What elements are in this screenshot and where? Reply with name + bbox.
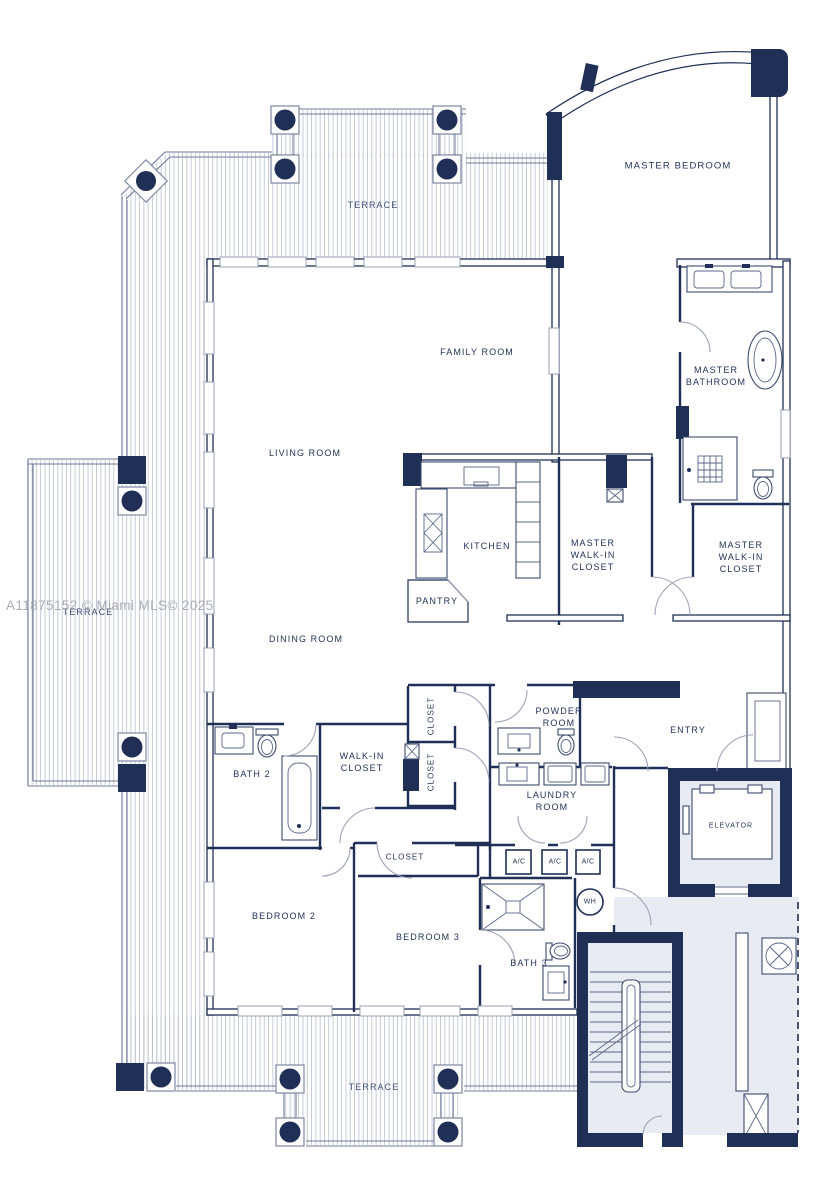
room-label-pantry: PANTRY — [416, 595, 458, 607]
label-ac-1: A/C — [513, 857, 526, 866]
room-label-master-bedroom: MASTER BEDROOM — [625, 161, 732, 174]
room-label-closet-2: CLOSET — [427, 753, 438, 792]
room-label-walk-in-closet: WALK-IN CLOSET — [340, 750, 385, 774]
room-label-bedroom-3: BEDROOM 3 — [396, 931, 460, 943]
room-label-powder-room: POWDER ROOM — [535, 705, 582, 729]
room-label-laundry-room: LAUNDRY ROOM — [527, 789, 578, 813]
room-label-closet-bed3: CLOSET — [386, 853, 425, 864]
room-label-master-wic-left: MASTER WALK-IN CLOSET — [571, 537, 616, 573]
powder-room-fixtures — [498, 728, 574, 755]
floorplan-page: TERRACE TERRACE TERRACE MASTER BEDROOM F… — [0, 0, 819, 1200]
room-label-entry: ENTRY — [670, 724, 706, 736]
label-water-heater: WH — [584, 897, 596, 906]
room-label-master-wic-right: MASTER WALK-IN CLOSET — [719, 539, 764, 575]
room-label-closet-1: CLOSET — [427, 697, 438, 736]
room-label-terrace-bottom: TERRACE — [349, 1081, 400, 1093]
mls-watermark: A11875152 © Miami MLS© 2025 — [6, 598, 214, 613]
column-master-corner — [751, 49, 788, 97]
room-label-elevator: ELEVATOR — [709, 821, 753, 830]
room-label-bath-3: BATH 3 — [510, 957, 547, 969]
room-label-kitchen: KITCHEN — [463, 540, 510, 552]
room-label-dining-room: DINING ROOM — [269, 633, 343, 645]
room-label-terrace-top: TERRACE — [348, 199, 399, 211]
curved-wall — [546, 52, 764, 124]
entry-fixtures — [747, 693, 786, 769]
room-label-family-room: FAMILY ROOM — [440, 346, 514, 358]
bath2-fixtures — [215, 725, 317, 840]
room-label-bath-2: BATH 2 — [233, 768, 270, 780]
kitchen-fixtures — [416, 462, 540, 578]
laundry-fixtures — [499, 763, 609, 785]
bath3-fixtures — [482, 884, 570, 1000]
room-label-master-bathroom: MASTER BATHROOM — [686, 364, 746, 388]
label-ac-2: A/C — [549, 857, 562, 866]
room-label-bedroom-2: BEDROOM 2 — [252, 910, 316, 922]
label-ac-3: A/C — [582, 857, 595, 866]
room-label-living-room: LIVING ROOM — [269, 447, 341, 459]
